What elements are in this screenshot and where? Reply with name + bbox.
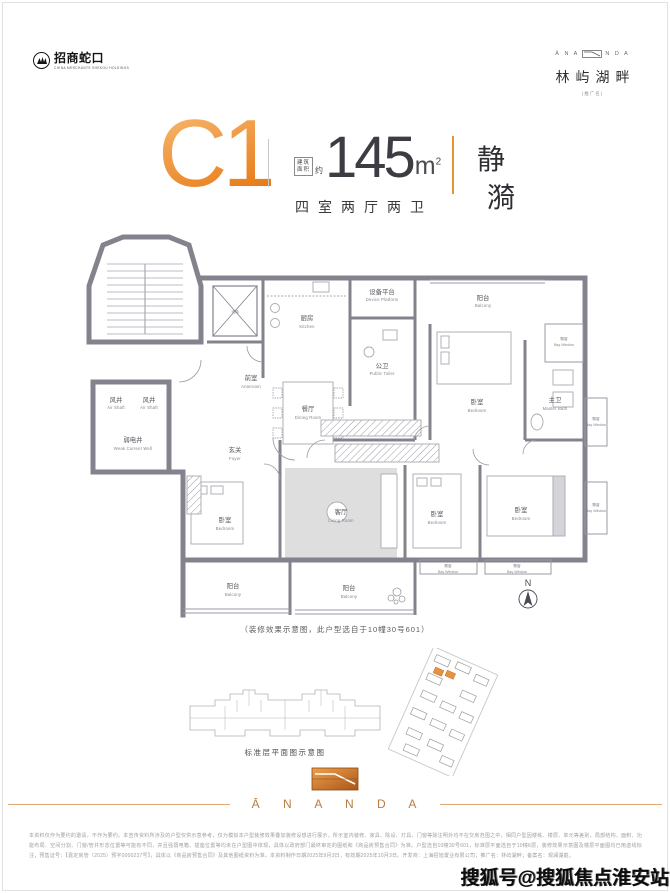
room-label-en: Bedroom xyxy=(216,526,235,531)
room-label: 设备平台 xyxy=(369,287,395,296)
divider-orange xyxy=(452,136,454,194)
room-label: 主卫 xyxy=(549,395,562,404)
divider-gray xyxy=(268,139,269,187)
stairs xyxy=(107,264,183,334)
room-label-en: Bay Window xyxy=(554,343,574,347)
plant-icon xyxy=(388,588,405,604)
unit-title: C1 xyxy=(158,106,271,202)
footer-wordmark: Ā N A N D A xyxy=(252,797,427,811)
north-label: N xyxy=(525,578,532,588)
room-label-en: Bay Window xyxy=(438,570,458,574)
poster-page: 招商蛇口 CHINA MERCHANTS SHEKOU HOLDINGS Ā N… xyxy=(0,0,670,893)
room-label-en: Public Toilet xyxy=(370,371,396,376)
room-label: 风井 xyxy=(143,395,156,404)
room-label-en: Air Shaft xyxy=(107,405,125,410)
room-label-en: Device Platform xyxy=(366,297,399,302)
developer-name: 招商蛇口 xyxy=(54,52,129,64)
floorplate-diagram xyxy=(185,686,385,744)
mountain-logo-icon xyxy=(33,52,50,69)
room-label: 卧室 xyxy=(471,397,484,406)
brand-name: 林屿湖畔 xyxy=(540,67,645,87)
room-label-lift: 电梯 xyxy=(231,309,239,314)
footer-rule-left xyxy=(8,804,230,805)
floor-plan-diagram: N 电梯 前室 Anteroom 风井 Air Shaft 风井 Air Sha… xyxy=(85,230,645,620)
room-label: 卧室 xyxy=(515,505,528,514)
room-label-en: Foyer xyxy=(229,456,241,461)
room-label-en: Air Shaft xyxy=(140,405,158,410)
room-label: 公卫 xyxy=(376,362,389,370)
room-label: 客厅 xyxy=(335,507,348,516)
room-label-en: Master Bath xyxy=(543,406,568,411)
room-label-en: Dining Room xyxy=(295,415,322,420)
room-label-en: Balcony xyxy=(341,594,358,599)
room-label-en: Living Room xyxy=(328,518,354,523)
watermark: 搜狐号@搜狐焦点淮安站 xyxy=(460,863,669,890)
brand-note: (推广名) xyxy=(540,91,645,97)
area-label-1: 建筑 xyxy=(297,160,310,167)
area-label-box: 建筑 面积 xyxy=(294,157,313,176)
siteplan-diagram xyxy=(388,648,498,776)
floorplate-caption: 标准层平面图示意图 xyxy=(180,747,390,758)
room-label: 弱电井 xyxy=(123,435,143,444)
area-approx: 约 xyxy=(315,165,323,176)
room-label-en: Bedroom xyxy=(512,516,531,521)
room-label-en: Bay Window xyxy=(586,423,606,427)
room-label: 飘窗 xyxy=(513,563,521,568)
room-label: 厨房 xyxy=(301,313,314,322)
layout-description: 四室两厅两卫 xyxy=(295,197,433,217)
room-label: 飘窗 xyxy=(592,416,600,421)
area-block: 建筑 面积 约 145 m2 xyxy=(294,132,441,184)
developer-name-en: CHINA MERCHANTS SHEKOU HOLDINGS xyxy=(54,66,129,70)
room-label: 玄关 xyxy=(229,445,242,454)
brand-emblem-icon xyxy=(582,50,602,58)
room-label-en: Bay Window xyxy=(507,570,527,574)
room-label-en: Bedroom xyxy=(468,408,487,413)
room-label-en: Bay Window xyxy=(586,509,606,513)
room-label: 餐厅 xyxy=(302,404,315,413)
theme-name-char2: 漪 xyxy=(487,176,515,216)
room-label-en: Balcony xyxy=(475,303,492,308)
room-label: 飘窗 xyxy=(592,502,600,507)
brand-wordmark-right: N D A xyxy=(605,51,629,57)
area-label-2: 面积 xyxy=(297,167,310,174)
footer-rule-right xyxy=(440,804,662,805)
brand-wordmark-left: Ā N A xyxy=(555,51,579,57)
room-label: 阳台 xyxy=(477,293,490,302)
room-label: 前室 xyxy=(245,373,258,382)
north-compass-icon: N xyxy=(519,578,537,608)
area-value: 145 xyxy=(325,132,413,184)
room-label: 阳台 xyxy=(227,581,240,590)
room-label-en: Weak Current Well xyxy=(114,446,152,451)
room-label: 卧室 xyxy=(219,515,232,524)
room-label-en: Kitchen xyxy=(299,324,315,329)
footer-wordmark-row: Ā N A N D A xyxy=(0,797,670,811)
room-label: 风井 xyxy=(110,395,123,404)
room-label-en: Anteroom xyxy=(241,384,261,389)
developer-logo: 招商蛇口 CHINA MERCHANTS SHEKOU HOLDINGS xyxy=(33,52,129,70)
room-label-en: Bedroom xyxy=(428,520,447,525)
room-label: 阳台 xyxy=(343,583,356,592)
room-label: 飘窗 xyxy=(560,336,568,341)
brand-block: Ā N A N D A 林屿湖畔 (推广名) xyxy=(540,50,645,97)
area-unit: m2 xyxy=(415,149,441,184)
room-label: 卧室 xyxy=(431,509,444,518)
disclaimer-text: 本资料仅作为要约的邀请，不作为要约。本宣传资料所涉及的户型仅供示意参考，仅为模拟… xyxy=(29,832,642,861)
footer-emblem-icon xyxy=(311,767,359,791)
plan-caption: （装修效果示意图，此户型选自于10幢30号601） xyxy=(0,624,670,635)
room-label: 飘窗 xyxy=(444,563,452,568)
room-label-en: Balcony xyxy=(225,592,242,597)
theme-name-char1: 静 xyxy=(477,138,505,178)
